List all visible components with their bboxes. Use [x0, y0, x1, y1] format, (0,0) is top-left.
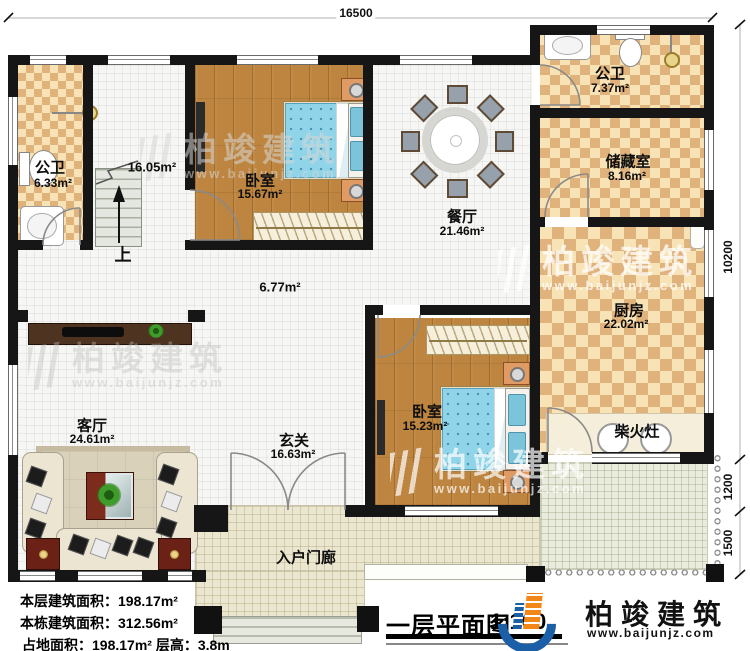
dimension-top: 16500: [336, 6, 375, 20]
wall: [588, 217, 714, 227]
stair-up-label: 上: [115, 241, 132, 266]
stat-floor-area: 本层建筑面积：198.17m²: [20, 591, 178, 611]
wall: [80, 240, 93, 250]
dining-chair: [447, 85, 468, 104]
window: [405, 506, 498, 516]
wall: [83, 55, 93, 250]
porch-column: [357, 606, 379, 632]
room-area-foyer: 16.63m²: [271, 447, 316, 461]
window: [78, 571, 142, 581]
wall: [8, 240, 43, 250]
shower-arm: [52, 112, 86, 114]
dimension-right-lower: 1500: [721, 527, 735, 560]
window: [400, 55, 472, 65]
window: [592, 453, 680, 463]
wall: [194, 505, 228, 532]
wall: [188, 310, 205, 322]
window: [704, 130, 714, 190]
floor-plan: 柏竣建筑 www.baijunjz.com 柏竣建筑 www.baijunjz.…: [0, 0, 750, 651]
window: [108, 55, 170, 65]
side-table: [26, 538, 60, 570]
dining-chair: [447, 179, 468, 198]
brand-url: www.baijunjz.com: [587, 626, 715, 640]
wall: [420, 305, 540, 315]
stat-total-area: 本栋建筑面积：312.56m²: [20, 613, 178, 633]
terrace-balustrade-bottom: [543, 566, 707, 579]
window: [20, 571, 55, 581]
porch-curb: [364, 564, 528, 580]
side-table: [158, 538, 191, 570]
nightstand: [503, 470, 530, 493]
window: [30, 55, 66, 65]
plant-icon: [97, 483, 121, 507]
dimension-right-mid: 1200: [721, 471, 735, 504]
room-label-bath1: 公卫: [35, 157, 65, 178]
porch-column: [526, 566, 545, 582]
stove-label: 柴火灶: [614, 421, 659, 442]
floor-terrace: [540, 462, 708, 570]
wardrobe-bedroom1: [253, 212, 367, 241]
brand-logo-icon: [498, 589, 556, 647]
dining-table: [422, 107, 488, 173]
dining-chair: [401, 131, 420, 152]
wall: [530, 108, 714, 118]
wall: [185, 55, 195, 190]
nightstand: [503, 362, 530, 385]
window: [704, 350, 714, 413]
room-area-hallway: 6.77m²: [259, 280, 300, 295]
dining-chair: [495, 131, 514, 152]
room-label-porch: 入户门廊: [276, 547, 336, 568]
room-area-living: 24.61m²: [70, 432, 115, 446]
room-area-stairhall: 16.05m²: [128, 160, 176, 175]
room-area-storage: 8.16m²: [608, 169, 646, 183]
window: [237, 55, 318, 65]
wall: [530, 25, 540, 65]
tv-living: [62, 327, 124, 337]
plant-icon: [148, 324, 164, 338]
pillow: [350, 107, 364, 137]
terrace-column: [706, 564, 724, 582]
room-area-dining: 21.46m²: [440, 224, 485, 238]
room-area-bath2: 7.37m²: [591, 81, 629, 95]
porch-steps: [213, 616, 362, 644]
pillow: [350, 141, 364, 171]
wardrobe-bedroom2: [426, 325, 530, 355]
window: [597, 25, 650, 35]
stat-footprint: 占地面积：198.17m² 层高：3.8m: [22, 635, 230, 651]
tv-bedroom1: [196, 102, 205, 172]
porch-column: [194, 606, 222, 634]
room-area-kitchen: 22.02m²: [604, 317, 649, 331]
window: [168, 571, 192, 581]
wall: [365, 305, 375, 515]
wall: [530, 217, 545, 227]
room-area-bedroom2: 15.23m²: [403, 419, 448, 433]
wall: [8, 310, 28, 322]
wall: [185, 240, 373, 250]
mattress: [285, 103, 340, 178]
shower-head-icon: [664, 52, 680, 68]
wall: [363, 55, 373, 250]
sink-icon: [544, 31, 591, 60]
mattress: [442, 388, 500, 470]
staircase: [95, 168, 142, 247]
window: [8, 365, 18, 455]
dimension-right-upper: 10200: [721, 237, 735, 276]
room-area-bath1: 6.33m²: [34, 176, 72, 190]
window: [8, 97, 18, 165]
tv-bedroom2: [377, 400, 385, 455]
pillow: [508, 432, 526, 464]
pillow: [508, 394, 526, 426]
window: [704, 230, 714, 297]
wall: [365, 305, 383, 315]
room-area-bedroom1: 15.67m²: [238, 187, 283, 201]
